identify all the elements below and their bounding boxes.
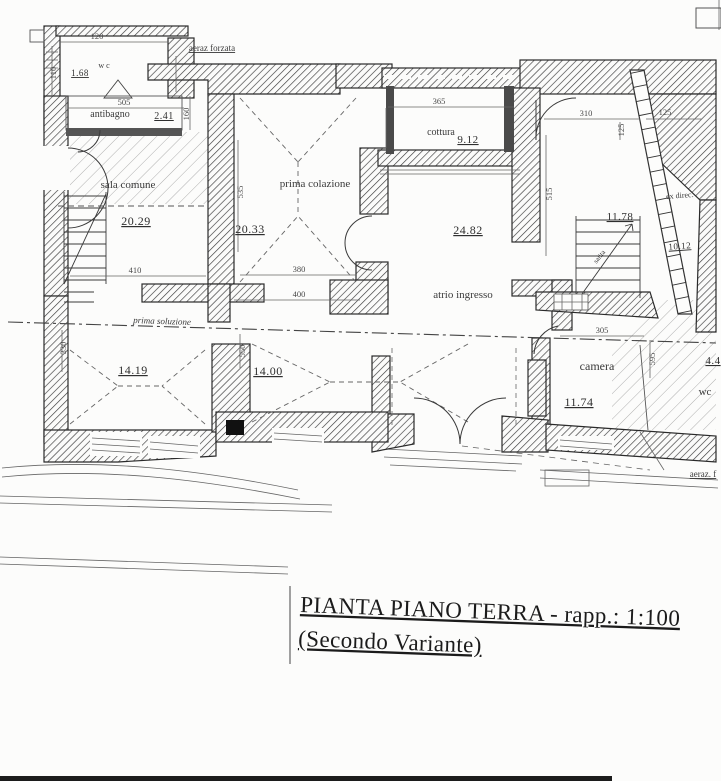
linea-prima-soluzione: prima soluzione xyxy=(132,315,191,327)
drawing-title: PIANTA PIANO TERRA - rapp.: 1:100 xyxy=(300,592,681,631)
floor-plan-canvas: w c1.68antibagno2.41sala comune20.29prim… xyxy=(0,0,721,781)
plan-shape xyxy=(0,557,288,574)
dimension-label: 595 xyxy=(647,353,657,366)
plan-shape xyxy=(64,192,106,302)
plan-shape xyxy=(272,428,324,446)
wall-segment xyxy=(56,26,188,36)
room-label-camera: camera xyxy=(580,359,615,373)
room-area-camera: 11.74 xyxy=(564,395,593,409)
dimension-label: 125 xyxy=(616,124,626,137)
plan-shape xyxy=(380,170,520,174)
room-area-prima-colazione: 20.33 xyxy=(235,222,265,236)
dimension-label: 365 xyxy=(433,96,446,106)
dimension-label: 215 xyxy=(384,122,394,135)
plan-shape xyxy=(0,496,332,512)
room-area-stanza-14-00: 14.00 xyxy=(253,364,283,378)
plan-shape xyxy=(582,224,633,294)
dimension-label: 330 xyxy=(58,342,68,355)
dimension-label: 550 xyxy=(237,345,247,358)
door-opening xyxy=(42,146,70,190)
dimension-label: 535 xyxy=(235,186,245,199)
wall-segment xyxy=(208,94,234,286)
title-block: PIANTA PIANO TERRA - rapp.: 1:100 (Secon… xyxy=(290,586,681,664)
room-label-prima-colazione: prima colazione xyxy=(280,178,351,190)
wall-segment xyxy=(520,60,716,94)
room-label-antibagno: antibagno xyxy=(90,109,129,120)
room-label-wc-piccolo: w c xyxy=(98,61,110,70)
dimension-label: 305 xyxy=(596,325,609,335)
wall-segment xyxy=(372,356,390,418)
vent-triangle-symbol xyxy=(104,80,132,98)
dimension-label: 125 xyxy=(659,107,672,117)
room-area-cottura: 9.12 xyxy=(457,134,478,146)
room-area-sala-comune: 20.29 xyxy=(121,214,151,228)
dimension-label: 120 xyxy=(91,31,104,41)
vault-14-19 xyxy=(70,350,205,424)
small-window-box xyxy=(30,30,44,42)
wall-segment xyxy=(44,296,68,442)
drawing-subtitle: (Secondo Variante) xyxy=(298,626,482,658)
room-area-vano-scala: 11.78 xyxy=(607,211,634,223)
wall-segment-thin xyxy=(66,128,182,136)
wall-segment-thin xyxy=(386,86,394,154)
dimension-label: 160 xyxy=(181,108,191,121)
scanned-floor-plan-page: w c1.68antibagno2.41sala comune20.29prim… xyxy=(0,0,721,781)
plan-shape xyxy=(2,464,298,490)
wall-segment xyxy=(502,416,548,452)
wall-segment-thin xyxy=(504,86,514,152)
wall-segment xyxy=(330,280,388,314)
top-right-cut-box xyxy=(696,8,721,28)
dimension-label: 110 xyxy=(48,67,58,79)
plan-shape xyxy=(384,449,522,471)
vault-14-00 xyxy=(252,344,468,422)
wall-segment xyxy=(378,150,522,166)
room-area-vano-esterno: 10.12 xyxy=(668,240,691,252)
section-line xyxy=(8,322,716,343)
vault-prima-colazione xyxy=(240,98,356,282)
room-label-cottura: cottura xyxy=(427,127,455,138)
dimension-label: 515 xyxy=(544,188,554,201)
room-area-stanza-14-19: 14.19 xyxy=(118,363,148,377)
wall-segment xyxy=(696,200,716,332)
room-label-atrio-ingresso: atrio ingresso xyxy=(433,289,493,301)
room-area-antibagno: 2.41 xyxy=(154,111,174,122)
aeraz-forzata-top: aeraz forzata xyxy=(189,43,235,53)
scan-edge-bottom xyxy=(0,776,612,781)
room-area-wc-piccolo: 1.68 xyxy=(71,68,89,78)
dimension-label: 310 xyxy=(580,108,593,118)
aeraz-forzata-bottom: aeraz. f xyxy=(690,469,716,479)
room-area-wc-camera: 4.4 xyxy=(705,355,720,367)
wall-segment xyxy=(208,284,230,322)
dimension-label: 400 xyxy=(293,289,306,299)
plan-shape xyxy=(2,473,300,499)
plan-shape xyxy=(8,322,716,343)
wall-segment xyxy=(142,284,264,302)
dimension-label: 505 xyxy=(118,97,131,107)
solid-pier xyxy=(226,420,244,435)
plan-shape xyxy=(58,132,208,204)
dimension-label: 410 xyxy=(129,265,142,275)
room-label-sala-comune: sala comune xyxy=(101,179,156,191)
door-arc xyxy=(345,216,372,243)
stair-left xyxy=(64,192,106,302)
room-area-atrio-ingresso: 24.82 xyxy=(453,223,483,237)
room-label-wc-camera: wc xyxy=(699,386,712,398)
stair-right xyxy=(576,216,640,298)
room-label-vano-esterno: ex direc. xyxy=(666,190,694,201)
dimension-label: 380 xyxy=(293,264,306,274)
plan-shape xyxy=(148,436,200,458)
wall-segment xyxy=(528,360,546,416)
entrance-door-arc xyxy=(414,398,460,444)
